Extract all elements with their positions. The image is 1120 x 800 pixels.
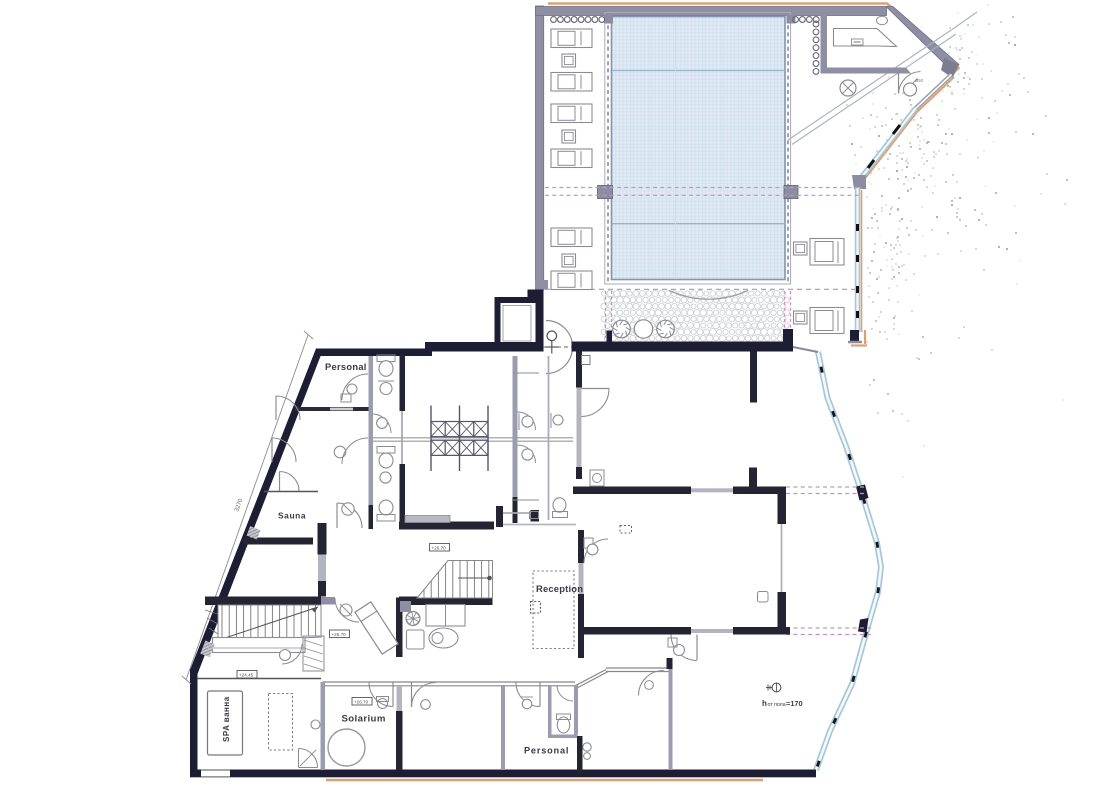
svg-text:Solarium: Solarium — [342, 714, 386, 725]
svg-text:Personal: Personal — [524, 746, 569, 756]
svg-text:Reception: Reception — [536, 583, 583, 594]
svg-text:+26.70: +26.70 — [354, 700, 369, 705]
svg-text:от пола: от пола — [768, 702, 786, 708]
svg-text:+24.45: +24.45 — [239, 673, 254, 678]
svg-text:SPA ванна: SPA ванна — [222, 696, 231, 742]
svg-text:Personal: Personal — [325, 362, 367, 372]
svg-text:+26.70: +26.70 — [332, 632, 347, 637]
svg-text:h: h — [762, 699, 767, 708]
svg-text:=170: =170 — [786, 699, 803, 708]
svg-text:Ø50: Ø50 — [915, 78, 924, 83]
svg-text:+26.70: +26.70 — [432, 546, 447, 551]
svg-text:Sauna: Sauna — [278, 511, 306, 521]
